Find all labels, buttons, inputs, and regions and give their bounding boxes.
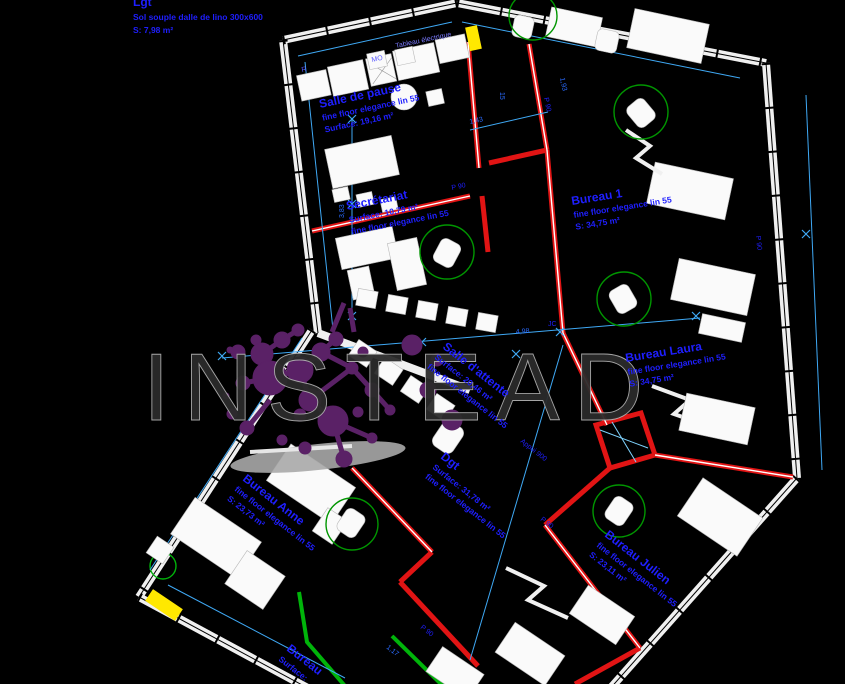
svg-text:Sol souple dalle de lino 300x6: Sol souple dalle de lino 300x600 xyxy=(133,12,263,22)
desk xyxy=(569,585,634,645)
dimension-text: 1,93 xyxy=(558,77,568,92)
office-chair xyxy=(607,282,639,316)
svg-text:fine floor elegance lin 55: fine floor elegance lin 55 xyxy=(423,471,508,540)
floor-plan-canvas: INSTEAD Lgt Sol souple dalle de lino 300… xyxy=(0,0,845,684)
chair xyxy=(356,288,379,308)
office-chair xyxy=(511,14,535,40)
floor-plan-drawing: INSTEAD Lgt Sol souple dalle de lino 300… xyxy=(0,0,845,684)
dimension-text: 15 xyxy=(498,92,505,100)
cabinet xyxy=(698,314,745,343)
jc-label: JC xyxy=(548,321,557,328)
svg-text:S: 7,98 m²: S: 7,98 m² xyxy=(133,25,173,35)
office-chair xyxy=(431,236,463,269)
desk xyxy=(670,258,755,315)
screen-divider xyxy=(506,568,568,618)
appui-label: Appui 900 xyxy=(519,438,548,463)
partition-wall xyxy=(489,150,547,163)
office-chair xyxy=(624,96,658,130)
dimension-text: 3,83 xyxy=(339,204,346,218)
chair xyxy=(416,300,439,320)
dimension-text: 4,98 xyxy=(516,328,530,336)
partition-wall xyxy=(545,468,610,525)
fridge-label: R xyxy=(301,66,307,74)
desk xyxy=(679,393,755,445)
office-chair xyxy=(594,28,620,54)
partition-wall xyxy=(400,552,432,582)
desk xyxy=(627,9,710,64)
partition-wall xyxy=(482,196,488,252)
door-label: P 90 xyxy=(419,624,435,638)
door-label: P 90 xyxy=(542,97,552,113)
chair xyxy=(476,312,499,332)
watermark-text: INSTEAD xyxy=(143,334,657,441)
dimension-text: 1,43 xyxy=(469,116,484,126)
dimension-line xyxy=(806,95,822,470)
room-label-dgt: Dgt Surface: 31,78 m² fine floor eleganc… xyxy=(423,449,525,540)
office-chair xyxy=(603,494,636,528)
door-label: P 90 xyxy=(754,235,762,250)
meeting-table xyxy=(325,135,400,188)
svg-text:Lgt: Lgt xyxy=(133,0,152,9)
chair xyxy=(386,294,409,314)
desk xyxy=(495,622,565,684)
door-label: P 90 xyxy=(451,182,467,192)
chair xyxy=(426,88,445,106)
desk xyxy=(677,478,762,556)
room-label-lgt: Lgt Sol souple dalle de lino 300x600 S: … xyxy=(133,0,263,35)
chair xyxy=(446,306,469,326)
dimension-text: 1,17 xyxy=(385,644,400,658)
